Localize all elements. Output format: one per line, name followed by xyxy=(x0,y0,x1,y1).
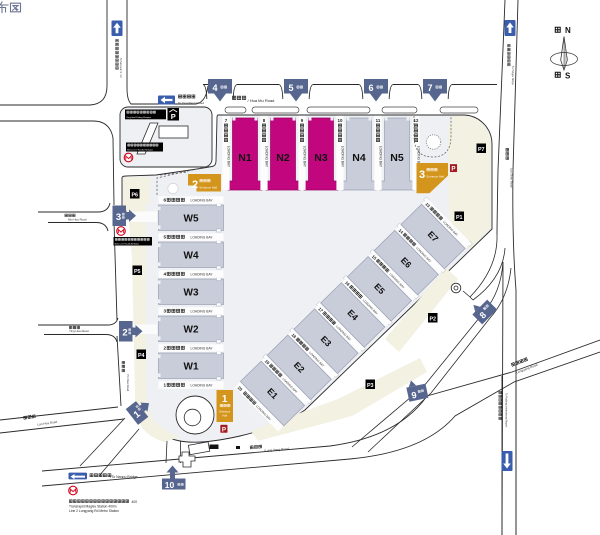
svg-text:P7: P7 xyxy=(478,147,485,153)
svg-text:N1: N1 xyxy=(238,152,252,164)
svg-text:To Yangpu Bridge: To Yangpu Bridge xyxy=(511,66,514,85)
svg-text:LOADING BAY: LOADING BAY xyxy=(191,235,214,239)
svg-text:Yin Xiao Road: Yin Xiao Road xyxy=(126,374,130,392)
svg-text:10: 10 xyxy=(165,480,175,490)
svg-text:LOADING BAY: LOADING BAY xyxy=(191,309,214,313)
svg-text:W1: W1 xyxy=(184,362,199,373)
svg-text:LOADING BAY: LOADING BAY xyxy=(227,146,231,168)
svg-text:LOADING BAY: LOADING BAY xyxy=(341,146,345,168)
svg-text:/ Hua Mu Road: / Hua Mu Road xyxy=(248,98,275,103)
svg-text:P: P xyxy=(451,166,455,173)
svg-text:7: 7 xyxy=(427,83,432,93)
svg-text:2: 2 xyxy=(164,346,167,351)
svg-text:2: 2 xyxy=(122,328,127,339)
svg-text:11: 11 xyxy=(376,118,381,123)
svg-text:S: S xyxy=(565,72,571,81)
svg-text:Luo Shan Road: Luo Shan Road xyxy=(510,168,514,188)
svg-text:Entrance Hall: Entrance Hall xyxy=(200,186,218,190)
svg-text:LOADING BAY: LOADING BAY xyxy=(303,146,307,168)
svg-text:Entrance Hall: Entrance Hall xyxy=(427,175,445,179)
svg-text:P2: P2 xyxy=(429,317,436,323)
svg-text:10: 10 xyxy=(338,118,343,123)
svg-text:N3: N3 xyxy=(314,152,328,164)
svg-text:P1: P1 xyxy=(456,215,463,221)
svg-text:LOADING BAY: LOADING BAY xyxy=(265,146,269,168)
svg-text:W5: W5 xyxy=(184,214,199,225)
svg-text:Hall: Hall xyxy=(222,414,227,418)
svg-text:2: 2 xyxy=(192,179,198,191)
svg-text:5: 5 xyxy=(164,235,167,240)
svg-text:W3: W3 xyxy=(184,288,199,299)
svg-text:W2: W2 xyxy=(184,325,199,336)
svg-text:Metro Line 7 Hua Mu Rd Station: Metro Line 7 Hua Mu Rd Station xyxy=(115,242,139,245)
svg-text:LOADING BAY: LOADING BAY xyxy=(379,146,383,168)
svg-text:Min Hua Road: Min Hua Road xyxy=(68,217,87,221)
svg-text:Kerry Hotel Pudong Shanghai: Kerry Hotel Pudong Shanghai xyxy=(127,116,152,119)
svg-text:N2: N2 xyxy=(276,152,290,164)
svg-text:N4: N4 xyxy=(352,152,366,164)
svg-text:1: 1 xyxy=(164,383,167,388)
svg-text:6: 6 xyxy=(164,198,167,203)
svg-text:P: P xyxy=(222,426,226,433)
svg-text:LOADING BAY: LOADING BAY xyxy=(191,346,214,350)
svg-text:N5: N5 xyxy=(390,152,404,164)
svg-text:Metro Line 7 Hua Mu Rd Station: Metro Line 7 Hua Mu Rd Station xyxy=(127,149,153,152)
svg-text:LOADING BAY: LOADING BAY xyxy=(191,272,214,276)
svg-text:Longyang Road: Longyang Road xyxy=(516,363,539,375)
svg-text:3: 3 xyxy=(164,309,167,314)
svg-text:To Pudong International Airpor: To Pudong International Airport xyxy=(505,393,508,428)
svg-text:To Nanquan N. Rd: To Nanquan N. Rd xyxy=(119,58,122,78)
svg-text:To Dongfang Road: To Dongfang Road xyxy=(178,101,204,105)
svg-text:W4: W4 xyxy=(184,251,199,262)
svg-text:P3: P3 xyxy=(367,383,374,389)
svg-text:/To Nanpu Bridge: /To Nanpu Bridge xyxy=(111,475,138,479)
svg-text:Ying Hua Road: Ying Hua Road xyxy=(69,329,89,333)
svg-text:12: 12 xyxy=(414,118,419,123)
svg-text:Entrance: Entrance xyxy=(219,410,230,414)
svg-text:P: P xyxy=(171,112,176,121)
svg-text:N: N xyxy=(565,26,571,35)
svg-text:6: 6 xyxy=(368,83,373,93)
svg-text:/Long Yang Road: /Long Yang Road xyxy=(264,447,289,453)
svg-text:P5: P5 xyxy=(134,269,141,275)
svg-text:Line 2 Longyang Rd Metro Stati: Line 2 Longyang Rd Metro Station xyxy=(69,509,119,513)
svg-text:LOADING BAY: LOADING BAY xyxy=(191,383,214,387)
svg-text:Lan Hua Road: Lan Hua Road xyxy=(37,420,58,427)
svg-text:3: 3 xyxy=(419,169,425,181)
svg-text:400: 400 xyxy=(132,500,138,504)
svg-text:P4: P4 xyxy=(138,353,145,359)
svg-text:LOADING BAY: LOADING BAY xyxy=(191,198,214,202)
svg-text:P6: P6 xyxy=(131,193,138,199)
svg-text:4: 4 xyxy=(212,83,217,93)
svg-text:4: 4 xyxy=(164,272,167,277)
svg-text:3: 3 xyxy=(116,212,121,223)
svg-text:5: 5 xyxy=(288,83,293,93)
svg-text:1: 1 xyxy=(222,394,228,405)
